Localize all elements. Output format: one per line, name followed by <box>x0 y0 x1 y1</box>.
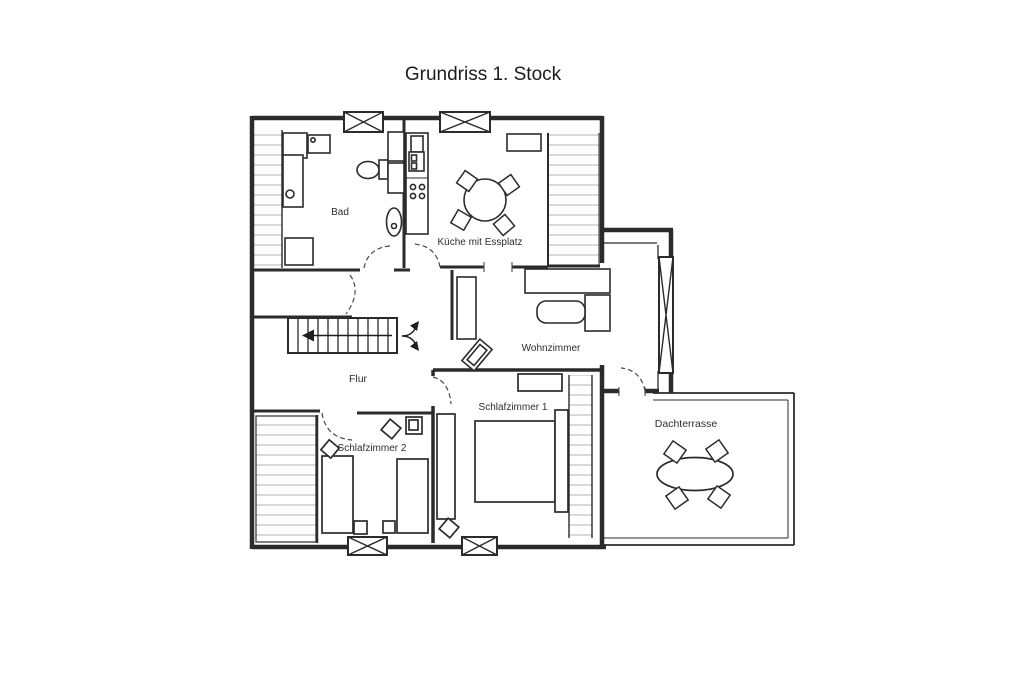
terrace-furniture <box>657 440 733 509</box>
terrace-table <box>657 458 733 491</box>
bidet-icon <box>387 208 402 236</box>
window-bad-top <box>344 112 383 132</box>
bedroom2-nightstand-2 <box>383 521 395 533</box>
label-schlafzimmer1: Schlafzimmer 1 <box>479 402 548 413</box>
bath-cabinet-1 <box>388 132 404 161</box>
kitchen-sink <box>409 152 424 171</box>
side-table <box>585 295 610 331</box>
stairs-split-arrow <box>402 321 419 351</box>
bedroom1-door-swing <box>433 377 451 404</box>
kitchen-door-swing <box>414 244 440 267</box>
kitchen-slope-hatch <box>549 133 599 266</box>
toilet-icon <box>357 160 388 179</box>
label-schlafzimmer2: Schlafzimmer 2 <box>338 443 407 454</box>
bath-cabinet-2 <box>388 163 404 193</box>
label-wohnzimmer: Wohnzimmer <box>522 343 581 354</box>
bad-door-swing <box>364 246 390 268</box>
window-bedroom2-bottom <box>348 537 387 555</box>
kitchen-fixtures <box>406 133 541 236</box>
bedroom1-wardrobe-right <box>555 410 568 512</box>
bedroom1-wardrobe-left <box>437 414 455 519</box>
closet-door-swing <box>346 275 355 314</box>
hall-cabinet <box>457 277 476 339</box>
label-bad: Bad <box>331 207 349 218</box>
sofa <box>525 269 610 293</box>
page-title: Grundriss 1. Stock <box>405 64 562 85</box>
label-kueche: Küche mit Essplatz <box>437 237 522 248</box>
bedroom1-bed <box>475 421 555 502</box>
floor-plan-svg: Grundriss 1. Stock <box>0 0 1024 683</box>
kitchen-livingroom-opening <box>484 262 512 272</box>
bedroom2-door-swing <box>322 413 352 440</box>
coffee-table <box>537 301 585 323</box>
bedroom2-desk <box>406 417 422 434</box>
bedroom2-chair-2 <box>381 419 401 439</box>
ironing-board <box>462 339 492 371</box>
livingroom-furniture <box>457 269 610 371</box>
bedroom2-furniture <box>321 417 428 534</box>
bad-slope-hatch <box>254 130 282 268</box>
floor-plan-page: Grundriss 1. Stock <box>0 0 1024 683</box>
bedroom2-bed-1 <box>322 456 353 533</box>
bedroom1-furniture <box>437 374 568 538</box>
bathtub <box>283 155 303 207</box>
staircase <box>288 318 419 353</box>
bathroom-fixtures <box>283 132 404 265</box>
terrace-door-opening <box>619 387 645 396</box>
shower <box>285 238 313 265</box>
bedroom1-shelf <box>518 374 562 391</box>
bedroom1-slope-hatch <box>569 375 592 538</box>
bedroom2-closet-hatch <box>256 416 316 542</box>
kitchen-sideboard <box>507 134 541 151</box>
window-livingroom-right <box>659 257 673 373</box>
label-flur: Flur <box>349 373 368 385</box>
window-kitchen-top <box>440 112 490 132</box>
bedroom2-nightstand-1 <box>354 521 367 534</box>
terrace-door-swing <box>621 368 645 391</box>
bedroom1-chair <box>439 518 459 538</box>
label-dachterrasse: Dachterrasse <box>655 418 718 430</box>
window-bedroom1-bottom <box>462 537 497 555</box>
bedroom2-bed-2 <box>397 459 428 533</box>
